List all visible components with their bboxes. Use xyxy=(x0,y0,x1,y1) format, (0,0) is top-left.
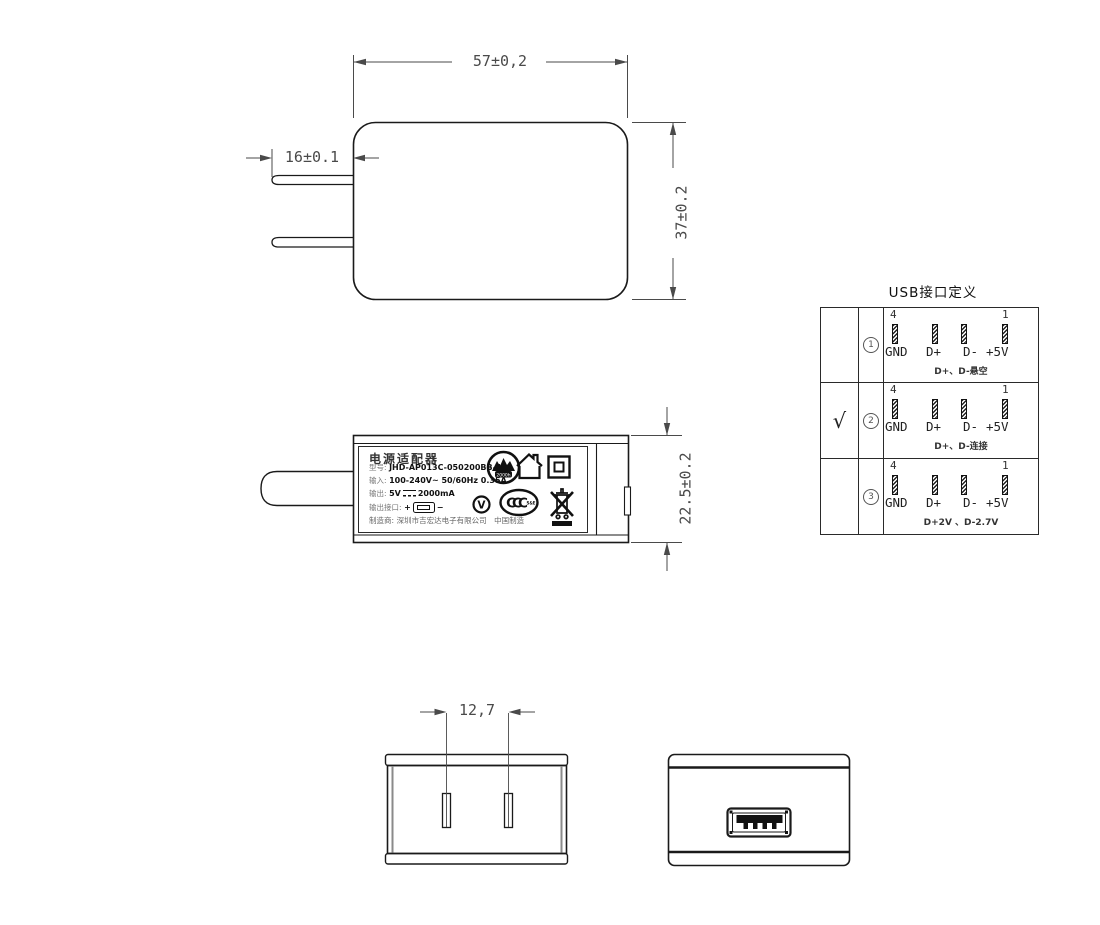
circled-number-1: 1 xyxy=(863,337,879,353)
maker-key: 制造商: xyxy=(369,516,394,525)
pin1-number: 1 xyxy=(1002,459,1009,472)
svg-text:2000h: 2000h xyxy=(496,472,510,478)
pin-label-dplus: D+ xyxy=(926,344,941,359)
input-key: 输入: xyxy=(369,476,387,485)
row2-check: √ xyxy=(833,409,846,433)
pin-label-5v: +5V xyxy=(986,495,1009,510)
label-output-row: 输出: 5V2000mA xyxy=(369,489,455,499)
pin-label-gnd: GND xyxy=(885,419,908,434)
pin-5v-icon xyxy=(1002,475,1008,495)
port-minus: − xyxy=(437,503,444,512)
efficiency-v-icon: V xyxy=(472,495,491,514)
pin-5v-icon xyxy=(1002,399,1008,419)
circled-number-3: 3 xyxy=(863,489,879,505)
pin-gnd-icon xyxy=(892,475,898,495)
pin-dminus-icon xyxy=(961,324,967,344)
dim-body-height: 37±0.2 xyxy=(674,170,691,256)
output-current: 2000mA xyxy=(418,489,455,498)
class-ii-icon xyxy=(547,455,571,479)
usb-contacts xyxy=(744,823,777,829)
pin-dminus-icon xyxy=(961,475,967,495)
pin-label-dminus: D- xyxy=(963,419,978,434)
dim-prong-spacing: 12,7 xyxy=(452,702,502,719)
pin-dplus-icon xyxy=(932,324,938,344)
pin-dplus-icon xyxy=(932,399,938,419)
circled-number-2: 2 xyxy=(863,413,879,429)
pin-label-dminus: D- xyxy=(963,344,978,359)
row1-pinout-cell: 4 1 GND D+ D- +5V D+、D-悬空 xyxy=(884,308,1038,383)
pin-label-dminus: D- xyxy=(963,495,978,510)
maker-value: 深圳市吉宏达电子有限公司 xyxy=(397,516,487,525)
svg-text:S&E: S&E xyxy=(526,501,535,506)
model-key: 型号: xyxy=(369,463,387,472)
row2-index-cell: 2 xyxy=(859,383,884,459)
dim-side-thickness: 22.5±0.2 xyxy=(678,441,695,537)
svg-text:CCC: CCC xyxy=(506,496,528,512)
dim-top-width: 57±0,2 xyxy=(454,53,546,70)
output-key: 输出: xyxy=(369,489,387,498)
pin4-number: 4 xyxy=(890,459,897,472)
row1-note: D+、D-悬空 xyxy=(884,364,1038,377)
output-voltage: 5V xyxy=(389,489,401,498)
indoor-use-house-icon xyxy=(515,452,544,481)
dim-22-lines xyxy=(631,407,682,571)
label-port-row: 输出接口: +− xyxy=(369,502,443,513)
plug-face-view xyxy=(386,755,568,865)
port-key: 输出接口: xyxy=(369,503,402,512)
row2-pinout-cell: 4 1 GND D+ D- +5V D+、D-连接 xyxy=(884,383,1038,459)
row3-index-cell: 3 xyxy=(859,459,884,534)
pin-dminus-icon xyxy=(961,399,967,419)
pin-label-dplus: D+ xyxy=(926,495,941,510)
row3-pinout-cell: 4 1 GND D+ D- +5V D+2V 、D-2.7V xyxy=(884,459,1038,534)
usb-pin-table: 1 4 1 GND D+ D- +5V D+、D-悬空 √ 2 4 1 xyxy=(820,307,1039,535)
ccc-mark-icon: CCC S&E xyxy=(499,488,539,517)
dc-symbol-icon xyxy=(403,490,416,498)
svg-text:V: V xyxy=(477,499,486,511)
pin-dplus-icon xyxy=(932,475,938,495)
label-maker-row: 制造商: 深圳市吉宏达电子有限公司 中国制造 xyxy=(369,516,524,526)
pin-label-5v: +5V xyxy=(986,419,1009,434)
dim-127-lines xyxy=(420,709,535,827)
origin-text: 中国制造 xyxy=(494,516,524,525)
row2-note: D+、D-连接 xyxy=(884,439,1038,452)
pin-label-gnd: GND xyxy=(885,344,908,359)
pin-label-5v: +5V xyxy=(986,344,1009,359)
label-model-row: 型号: JHD-AP013C-050200BB-A xyxy=(369,463,502,473)
port-plus: + xyxy=(404,503,411,512)
row2-selected-cell: √ xyxy=(821,383,859,459)
dim-prong-length: 16±0.1 xyxy=(276,149,348,166)
pin-gnd-icon xyxy=(892,399,898,419)
usb-face-view xyxy=(669,755,850,866)
technical-drawing-page: 57±0,2 16±0.1 37±0.2 22.5±0.2 12,7 电源适配器… xyxy=(0,0,1100,925)
pin-5v-icon xyxy=(1002,324,1008,344)
pin4-number: 4 xyxy=(890,383,897,396)
pin4-number: 4 xyxy=(890,308,897,321)
weee-bin-icon xyxy=(549,486,575,528)
rating-label: 电源适配器 型号: JHD-AP013C-050200BB-A 输入: 100-… xyxy=(358,446,588,533)
row1-selected-cell xyxy=(821,308,859,383)
row1-index-cell: 1 xyxy=(859,308,884,383)
pin-label-gnd: GND xyxy=(885,495,908,510)
pin1-number: 1 xyxy=(1002,383,1009,396)
row3-selected-cell xyxy=(821,459,859,534)
pin-gnd-icon xyxy=(892,324,898,344)
row3-note: D+2V 、D-2.7V xyxy=(884,515,1038,528)
usb-tongue xyxy=(737,815,783,823)
usb-connector-icon xyxy=(413,502,435,513)
usb-table-title: USB接口定义 xyxy=(863,281,1003,301)
pin-label-dplus: D+ xyxy=(926,419,941,434)
pin1-number: 1 xyxy=(1002,308,1009,321)
